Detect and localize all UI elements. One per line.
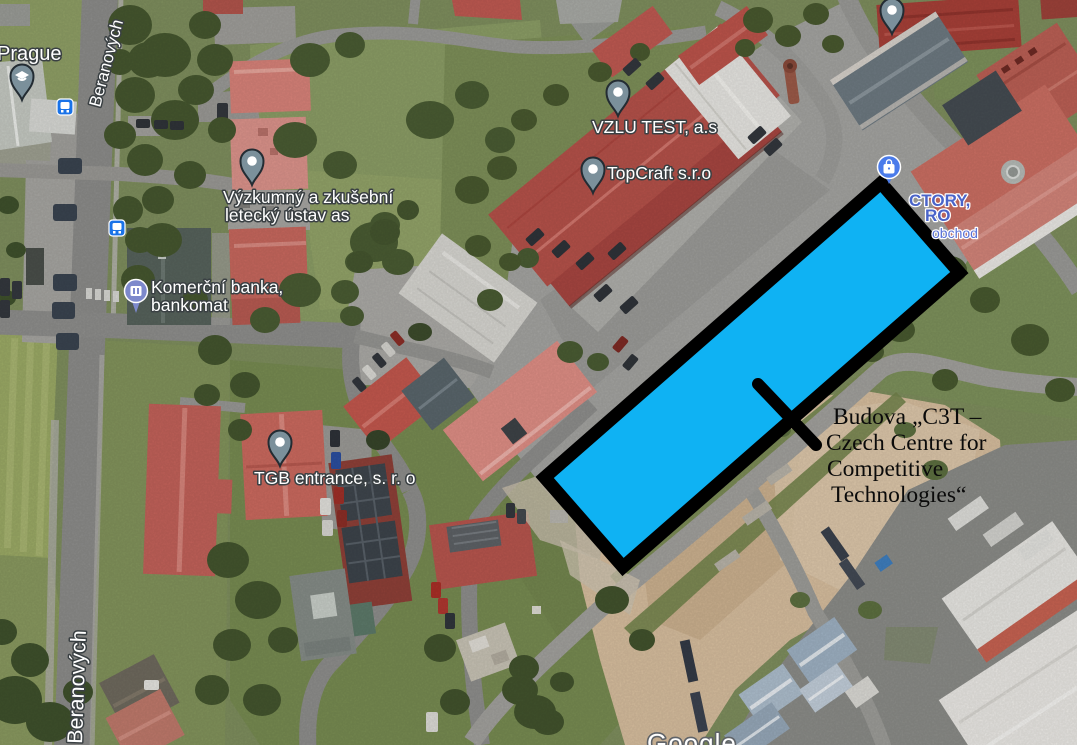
svg-text:RO: RO — [925, 206, 951, 225]
svg-text:Google: Google — [647, 728, 737, 745]
svg-text:TopCraft s.r.o: TopCraft s.r.o — [607, 163, 711, 183]
svg-text:Výzkumný a zkušební: Výzkumný a zkušební — [223, 187, 393, 207]
svg-text:letecký ústav as: letecký ústav as — [225, 205, 350, 225]
svg-text:Technologies“: Technologies“ — [831, 482, 966, 508]
svg-text:Czech Centre for: Czech Centre for — [826, 430, 987, 456]
svg-text:TGB entrance, s. r. o: TGB entrance, s. r. o — [254, 468, 415, 488]
svg-text:Prague: Prague — [0, 43, 62, 65]
svg-text:Beranových: Beranových — [63, 630, 91, 744]
svg-text:Komerční banka,: Komerční banka, — [151, 277, 283, 297]
svg-text:VZLU TEST, a.s: VZLU TEST, a.s — [592, 117, 717, 137]
svg-text:Budova „C3T –: Budova „C3T – — [833, 404, 982, 430]
svg-text:bankomat: bankomat — [151, 295, 228, 315]
svg-text:Competitive: Competitive — [827, 456, 943, 482]
svg-text:obchod: obchod — [932, 225, 978, 241]
